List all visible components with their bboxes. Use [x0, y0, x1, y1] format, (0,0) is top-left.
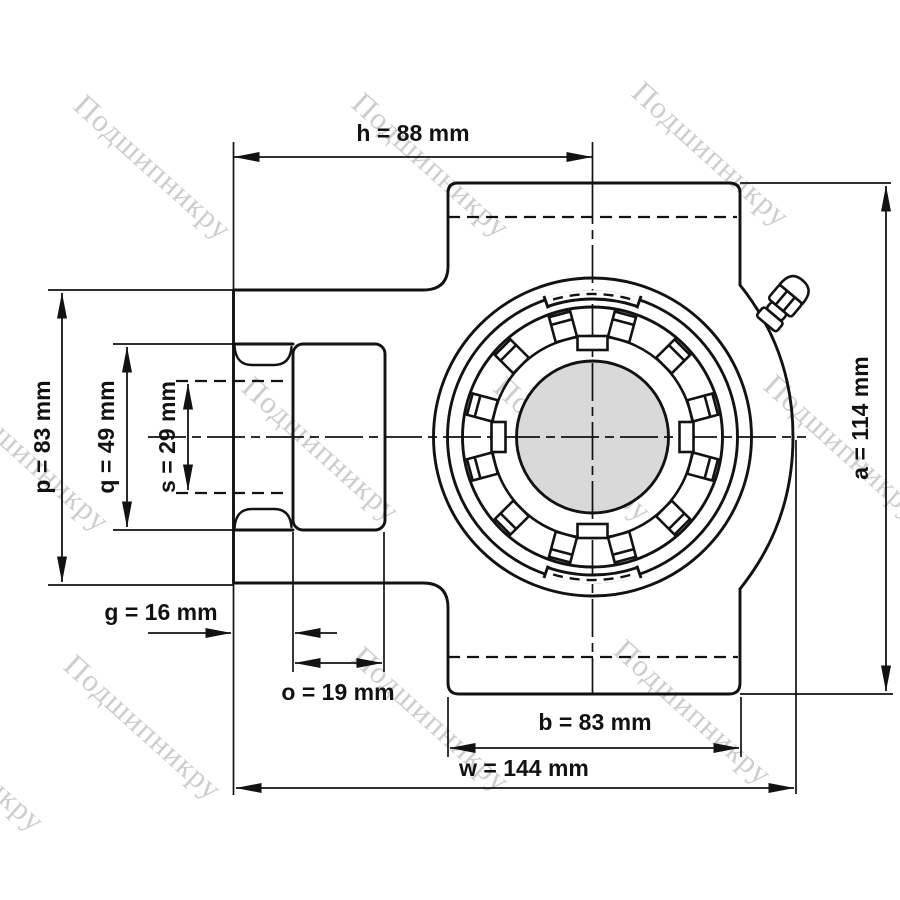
- dim-w-label: w = 144 mm: [458, 755, 589, 781]
- dim-q-label: q = 49 mm: [93, 380, 119, 493]
- grease-fitting-icon: [755, 271, 815, 334]
- slot-groove-bottom: [235, 509, 292, 528]
- watermark-text: Подшипникру: [235, 369, 407, 529]
- centerlines: [148, 186, 806, 694]
- bearing-drawing: Подшипникру Подшипникру Подшипникру Подш…: [0, 0, 900, 900]
- dim-s-label: s = 29 mm: [154, 381, 180, 493]
- dim-p-label: p = 83 mm: [29, 380, 55, 493]
- watermark-text: Подшипникру: [345, 85, 517, 245]
- dim-o-label: o = 19 mm: [281, 679, 394, 705]
- slot-groove-top: [235, 346, 292, 365]
- bearing-drawing-page: Подшипникру Подшипникру Подшипникру Подш…: [0, 0, 900, 900]
- watermark-text: Подшипникру: [757, 367, 900, 527]
- dim-a-label: a = 114 mm: [847, 356, 873, 479]
- watermark-text: Подшипникру: [625, 74, 797, 234]
- dim-h-label: h = 88 mm: [356, 120, 469, 146]
- watermark-text: Подшипникру: [0, 679, 52, 839]
- dimension-labels: h = 88 mm a = 114 mm p = 83 mm q = 49 mm…: [29, 120, 873, 781]
- dim-b-label: b = 83 mm: [538, 709, 651, 735]
- dim-g-label: g = 16 mm: [104, 599, 217, 625]
- watermark-text: Подшипникру: [67, 87, 239, 247]
- watermark-text: Подшипникру: [57, 647, 229, 807]
